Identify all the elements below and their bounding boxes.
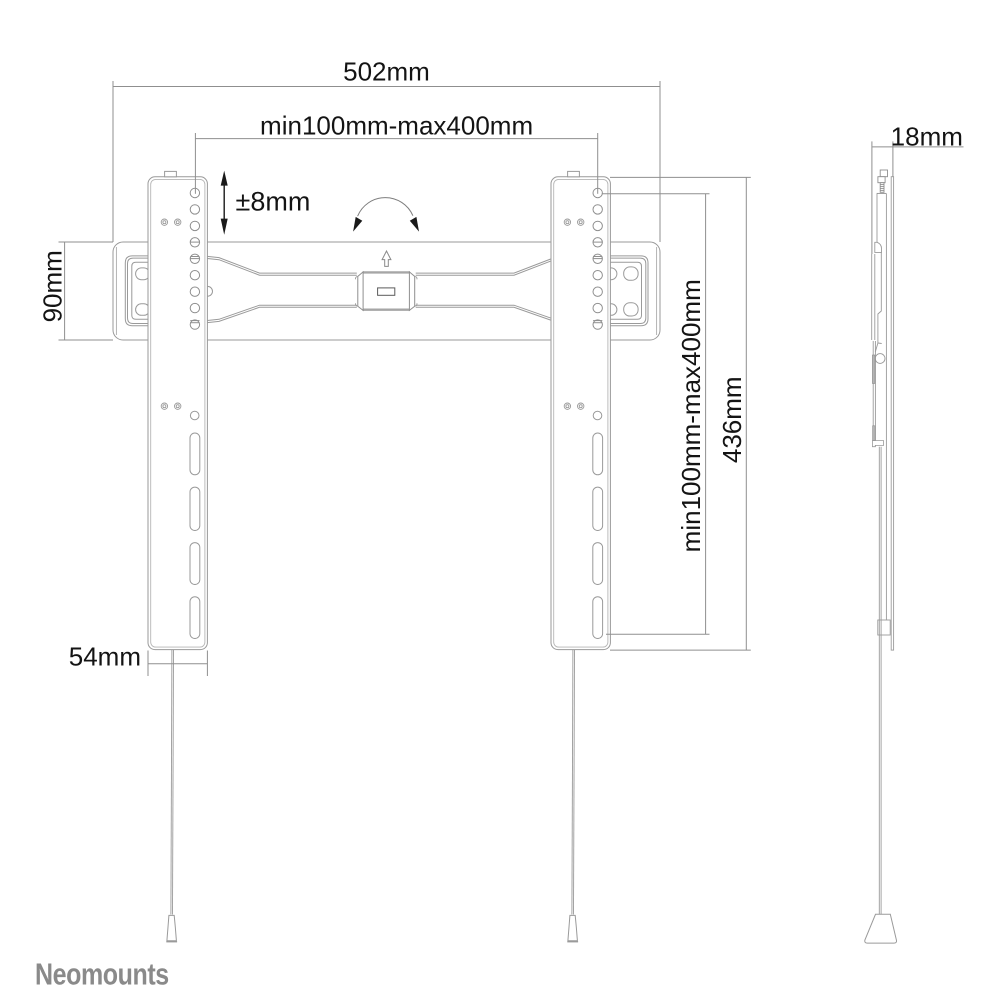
svg-text:54mm: 54mm — [69, 642, 141, 672]
svg-text:min100mm-max400mm: min100mm-max400mm — [260, 110, 533, 140]
svg-text:436mm: 436mm — [717, 376, 747, 463]
svg-text:Neomounts: Neomounts — [35, 957, 169, 991]
svg-text:90mm: 90mm — [38, 250, 68, 322]
svg-text:502mm: 502mm — [343, 56, 430, 86]
svg-text:18mm: 18mm — [891, 122, 963, 152]
svg-text:±8mm: ±8mm — [236, 186, 311, 216]
svg-text:min100mm-max400mm: min100mm-max400mm — [676, 279, 706, 552]
